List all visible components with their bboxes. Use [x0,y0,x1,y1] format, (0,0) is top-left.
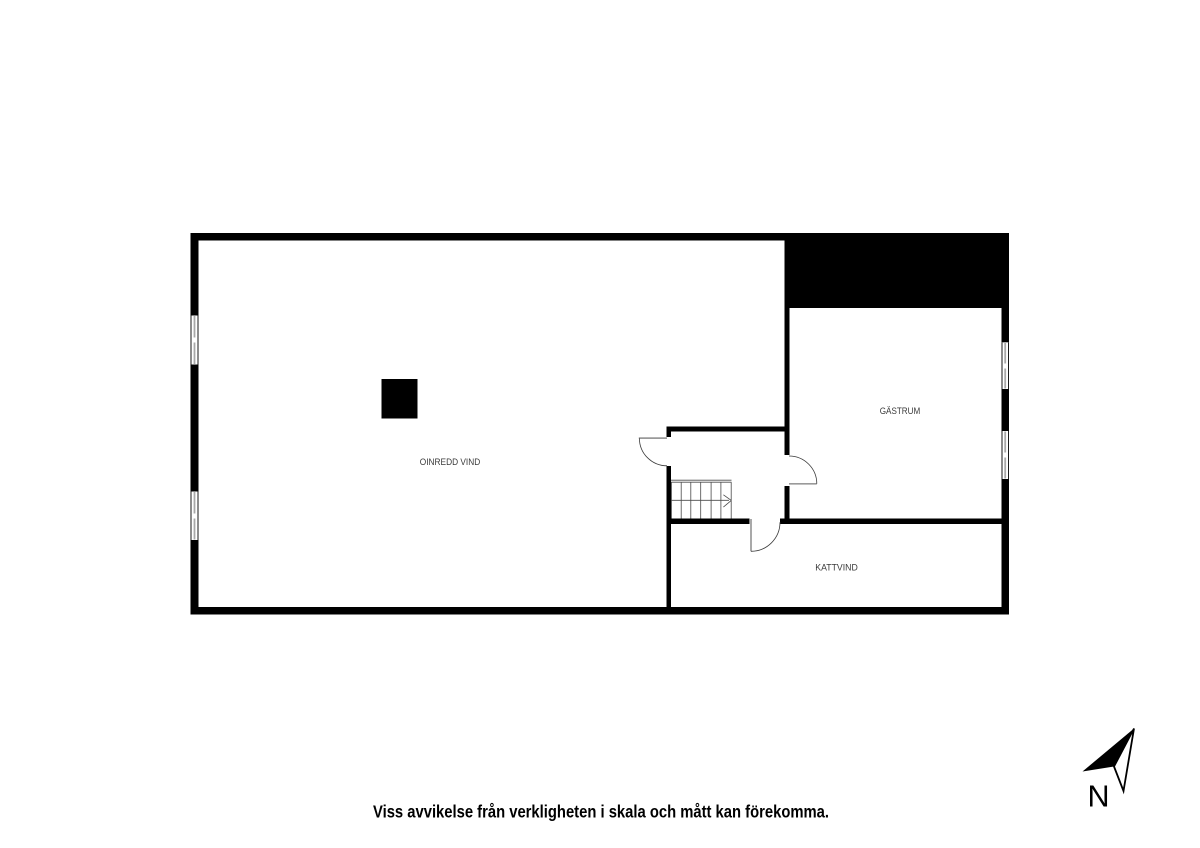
svg-text:N: N [1088,780,1110,814]
svg-text:GÄSTRUM: GÄSTRUM [880,406,921,417]
svg-text:Viss avvikelse från verklighet: Viss avvikelse från verkligheten i skala… [373,802,829,822]
svg-text:KATTVIND: KATTVIND [815,563,858,574]
svg-text:OINREDD VIND: OINREDD VIND [420,457,481,468]
